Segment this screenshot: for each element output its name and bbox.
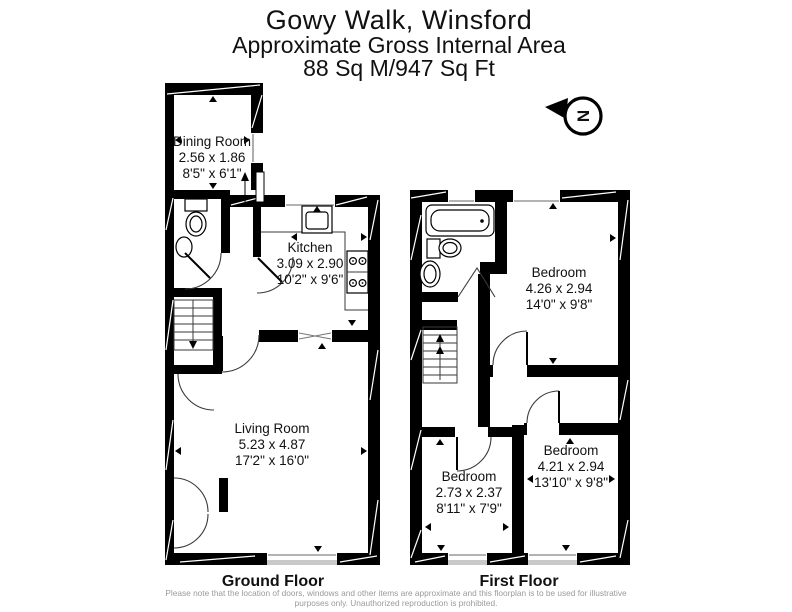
svg-text:5.23 x 4.87: 5.23 x 4.87: [239, 437, 306, 452]
svg-text:13'10" x 9'8": 13'10" x 9'8": [534, 475, 608, 490]
svg-text:10'2" x 9'6": 10'2" x 9'6": [277, 272, 344, 287]
svg-text:8'11" x 7'9": 8'11" x 7'9": [436, 501, 502, 516]
compass-north-icon: N: [545, 98, 601, 134]
disclaimer-line2: purposes only. Unauthorized reproduction…: [295, 598, 498, 608]
svg-text:17'2" x 16'0": 17'2" x 16'0": [235, 453, 309, 468]
first-floor-plan: Bedroom 4.26 x 2.94 14'0" x 9'8" Bedroom…: [410, 190, 630, 565]
svg-text:Bedroom: Bedroom: [442, 469, 497, 484]
stove-icon: [347, 251, 368, 293]
basin-icon: [176, 237, 192, 257]
ground-floor-doors: [174, 253, 293, 548]
svg-text:8'5" x 6'1": 8'5" x 6'1": [182, 166, 241, 181]
staircase-ground: [174, 300, 213, 350]
svg-text:2.73 x 2.37: 2.73 x 2.37: [436, 485, 503, 500]
svg-text:Bedroom: Bedroom: [532, 265, 587, 280]
room-label-bedroom3: Bedroom 2.73 x 2.37 8'11" x 7'9": [436, 469, 503, 516]
svg-text:Kitchen: Kitchen: [287, 240, 332, 255]
svg-text:2.56 x 1.86: 2.56 x 1.86: [179, 150, 246, 165]
disclaimer-line1: Please note that the location of doors, …: [165, 588, 627, 598]
staircase-first: [423, 327, 457, 383]
svg-text:4.26 x 2.94: 4.26 x 2.94: [526, 281, 593, 296]
svg-text:14'0" x 9'8": 14'0" x 9'8": [526, 297, 593, 312]
room-label-living: Living Room 5.23 x 4.87 17'2" x 16'0": [234, 421, 309, 468]
toilet-icon: [185, 199, 207, 236]
basin-icon-first: [420, 261, 440, 287]
svg-text:Bedroom: Bedroom: [544, 443, 599, 458]
page-area: 88 Sq M/947 Sq Ft: [303, 55, 495, 81]
page-title: Gowy Walk, Winsford: [266, 5, 533, 35]
floorplan-svg: Gowy Walk, Winsford Approximate Gross In…: [0, 0, 792, 612]
ground-floor-plan: Dining Room 2.56 x 1.86 8'5" x 6'1" Kitc…: [165, 83, 380, 565]
svg-text:4.21 x 2.94: 4.21 x 2.94: [538, 459, 605, 474]
svg-text:Dining Room: Dining Room: [173, 134, 251, 149]
toilet-icon-first: [427, 239, 461, 258]
floorplan-page: Gowy Walk, Winsford Approximate Gross In…: [0, 0, 792, 612]
room-label-bedroom1: Bedroom 4.26 x 2.94 14'0" x 9'8": [526, 265, 593, 312]
room-label-dining: Dining Room 2.56 x 1.86 8'5" x 6'1": [173, 134, 251, 181]
room-label-kitchen: Kitchen 3.09 x 2.90 10'2" x 9'6": [277, 240, 344, 287]
room-label-bedroom2: Bedroom 4.21 x 2.94 13'10" x 9'8": [534, 443, 608, 490]
kitchen-sink-icon: [302, 206, 332, 233]
svg-text:3.09 x 2.90: 3.09 x 2.90: [277, 256, 344, 271]
serving-hatch: [293, 330, 337, 342]
compass-letter: N: [574, 110, 593, 122]
bathtub-icon: [426, 205, 494, 236]
svg-text:Living Room: Living Room: [234, 421, 309, 436]
